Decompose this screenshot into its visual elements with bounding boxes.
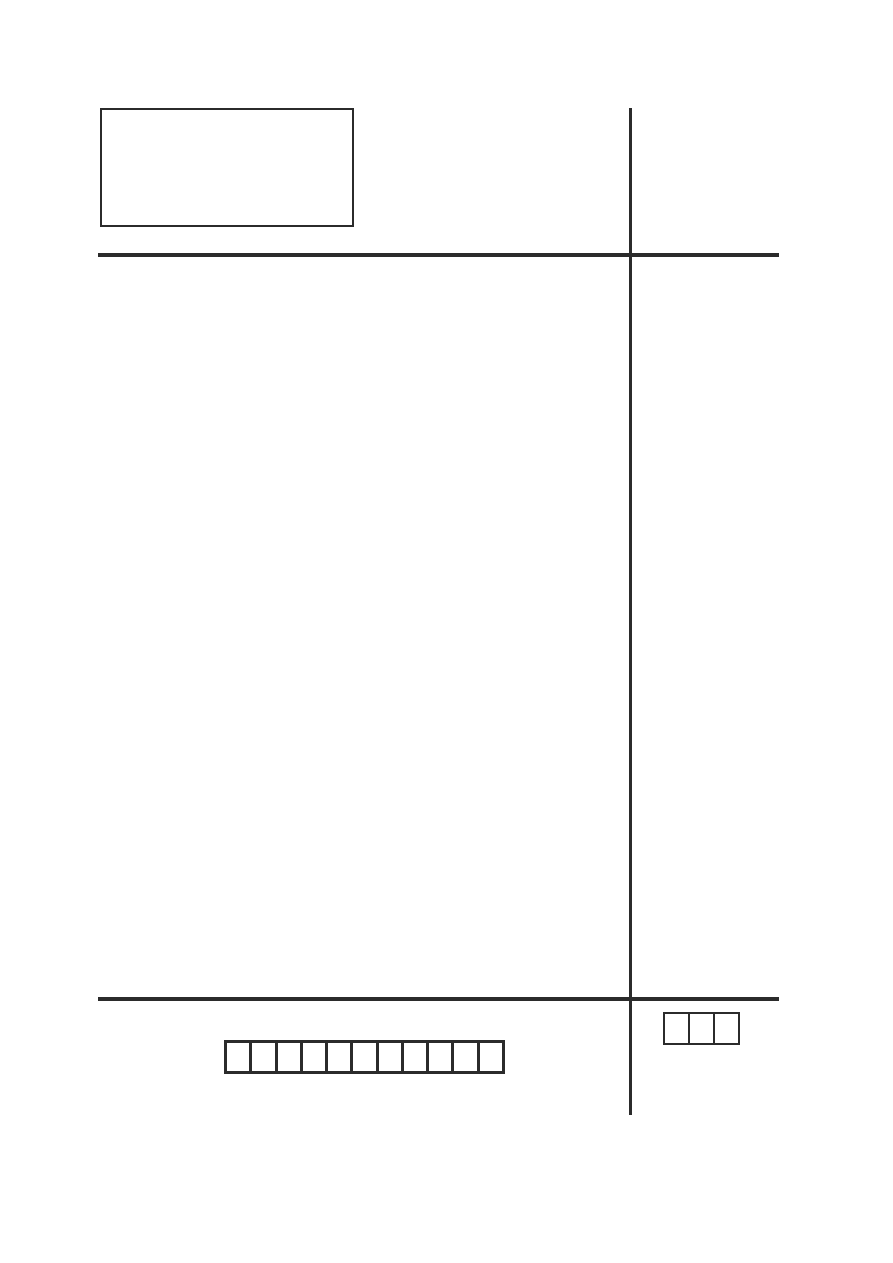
- id-digit-cell: [454, 1043, 479, 1071]
- id-digit-cell: [278, 1043, 303, 1071]
- score-boxes: [663, 1012, 740, 1045]
- document-page: [0, 0, 893, 1263]
- vertical-divider-line: [629, 108, 632, 1115]
- id-digit-boxes: [224, 1040, 505, 1074]
- score-cell: [715, 1014, 738, 1043]
- id-digit-cell: [353, 1043, 378, 1071]
- id-digit-cell: [404, 1043, 429, 1071]
- id-digit-cell: [480, 1043, 502, 1071]
- score-cell: [690, 1014, 715, 1043]
- top-horizontal-rule: [98, 253, 779, 257]
- id-digit-cell: [252, 1043, 277, 1071]
- bottom-horizontal-rule: [98, 997, 779, 1001]
- score-cell: [665, 1014, 690, 1043]
- blank-info-box: [100, 108, 354, 227]
- id-digit-cell: [379, 1043, 404, 1071]
- id-digit-cell: [303, 1043, 328, 1071]
- id-digit-cell: [328, 1043, 353, 1071]
- id-digit-cell: [429, 1043, 454, 1071]
- id-digit-cell: [227, 1043, 252, 1071]
